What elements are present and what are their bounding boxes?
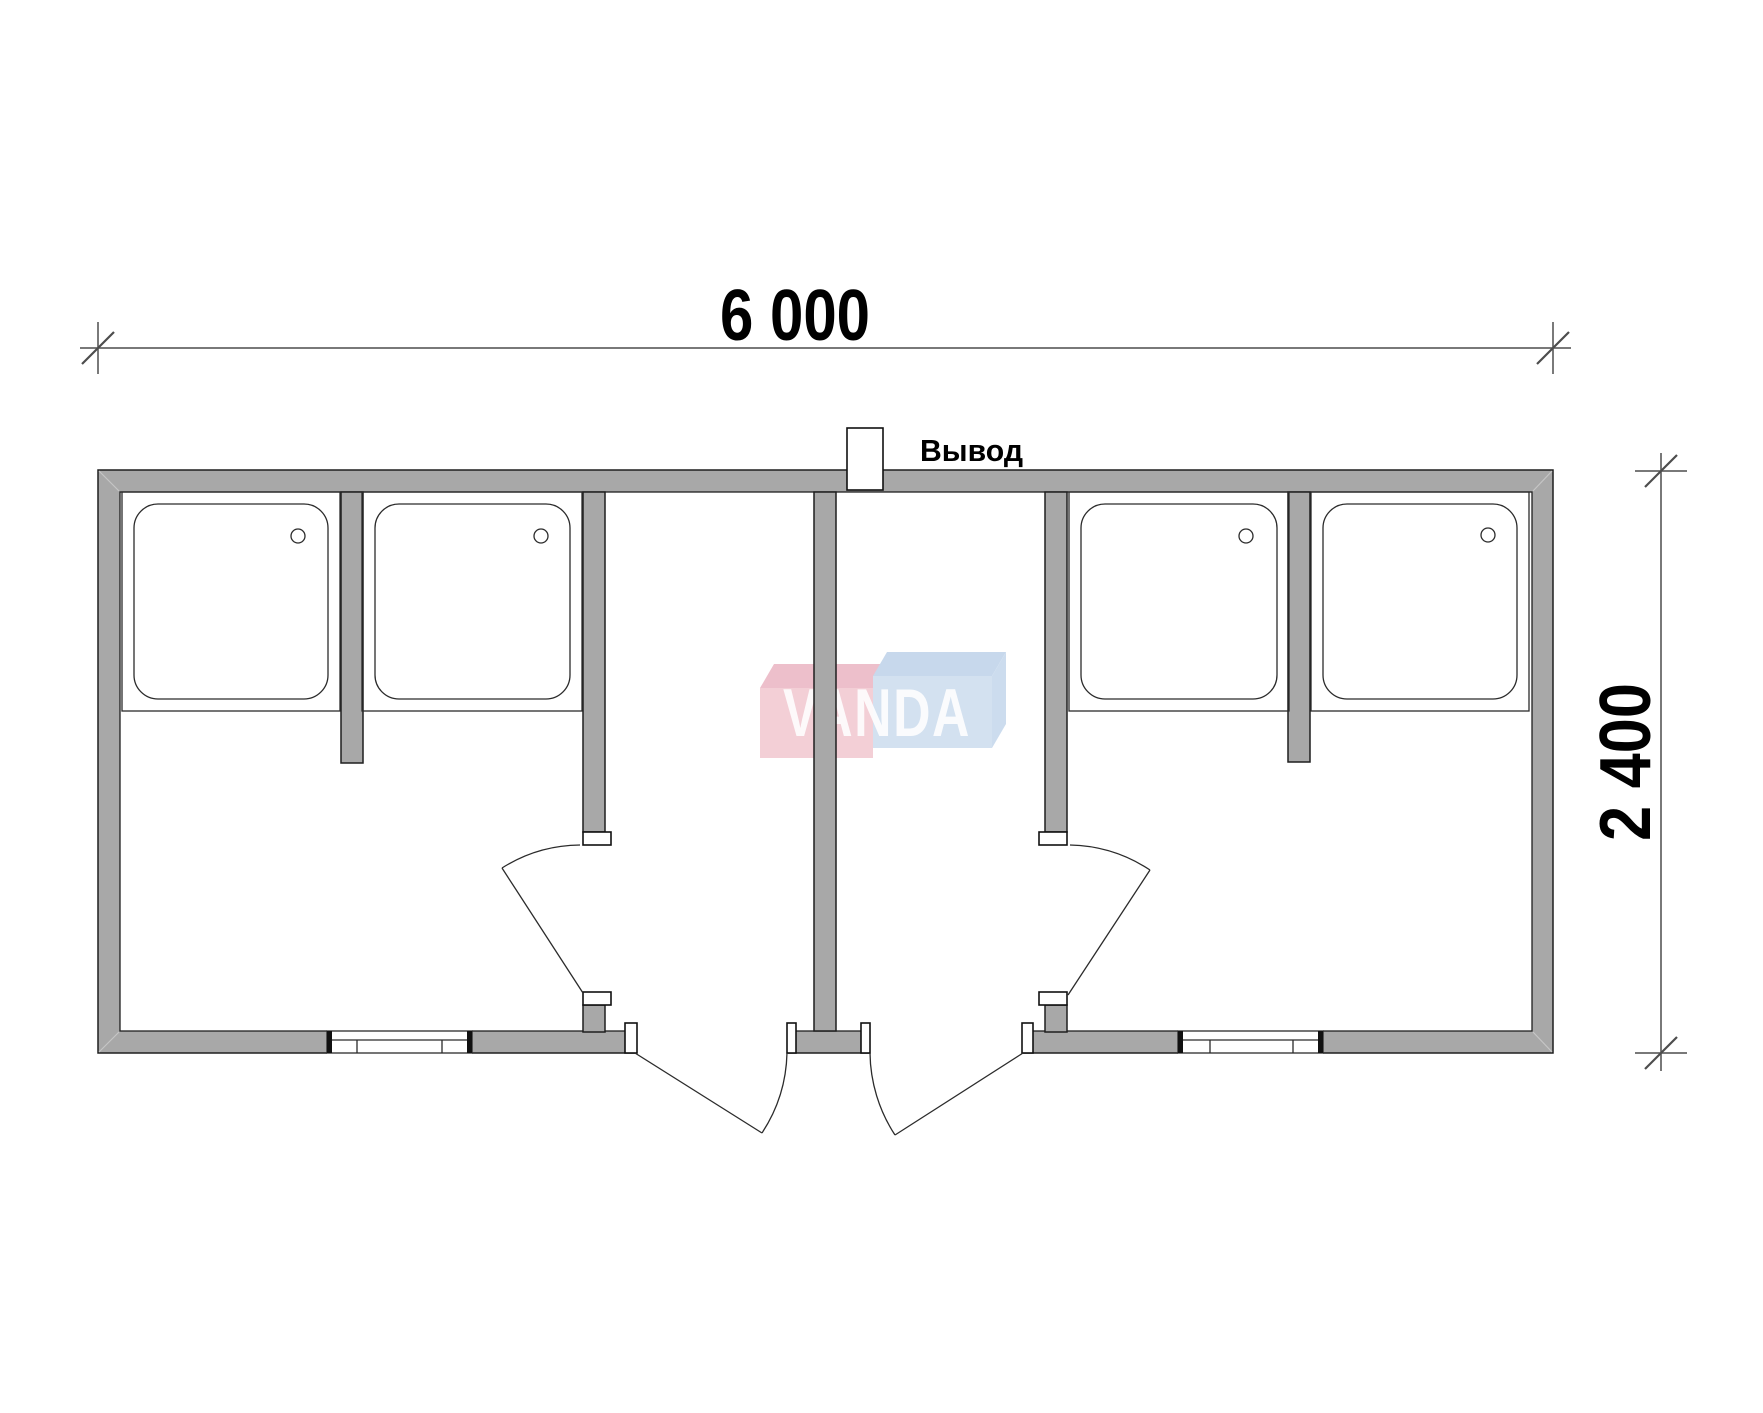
window-right [1178, 1031, 1323, 1053]
door-swing-arc [762, 1053, 787, 1133]
door-jamb [1039, 832, 1067, 845]
door-swing-arc [870, 1053, 895, 1135]
right-door-opening [870, 1028, 1022, 1056]
outlet-label: Вывод [920, 433, 1023, 468]
vanda-watermark-logo: VANDA [760, 652, 1006, 758]
left-room-partition-wall [583, 492, 605, 832]
window-end-cap [327, 1031, 332, 1053]
dimension-height-label: 2 400 [1586, 683, 1666, 841]
window-end-cap [467, 1031, 472, 1053]
door-jamb [861, 1023, 870, 1053]
door-jamb [1022, 1023, 1033, 1053]
logo-blue-box-top [873, 652, 1006, 676]
left-door-opening [637, 1028, 787, 1056]
door-jamb [583, 832, 611, 845]
entrance-door-left [635, 1053, 787, 1133]
central-partition-wall [814, 492, 836, 1031]
door-jamb [583, 992, 611, 1005]
door-leaf [895, 1053, 1023, 1135]
floor-plan-drawing: VANDA [0, 0, 1763, 1413]
window-frame [327, 1031, 472, 1053]
dimension-width-label: 6 000 [720, 276, 870, 356]
right-room-partition-wall [1045, 492, 1067, 832]
door-jamb [625, 1023, 637, 1053]
door-jamb [1039, 992, 1067, 1005]
right-shower-divider-wall [1288, 492, 1310, 762]
window-end-cap [1178, 1031, 1183, 1053]
window-left [327, 1031, 472, 1053]
left-room-partition-stub [583, 1005, 605, 1032]
entrance-door-right [870, 1053, 1023, 1135]
left-shower-divider-wall [341, 492, 363, 763]
watermark-text: VANDA [783, 675, 971, 751]
dimension-height: 2 400 [1586, 453, 1687, 1071]
outlet-symbol [847, 428, 883, 490]
door-leaf [635, 1053, 762, 1133]
window-end-cap [1318, 1031, 1323, 1053]
floor-plan-canvas: VANDA [0, 0, 1763, 1413]
right-room-partition-stub [1045, 1005, 1067, 1032]
dimension-width: 6 000 [80, 276, 1571, 374]
window-frame [1178, 1031, 1323, 1053]
door-jamb [787, 1023, 796, 1053]
